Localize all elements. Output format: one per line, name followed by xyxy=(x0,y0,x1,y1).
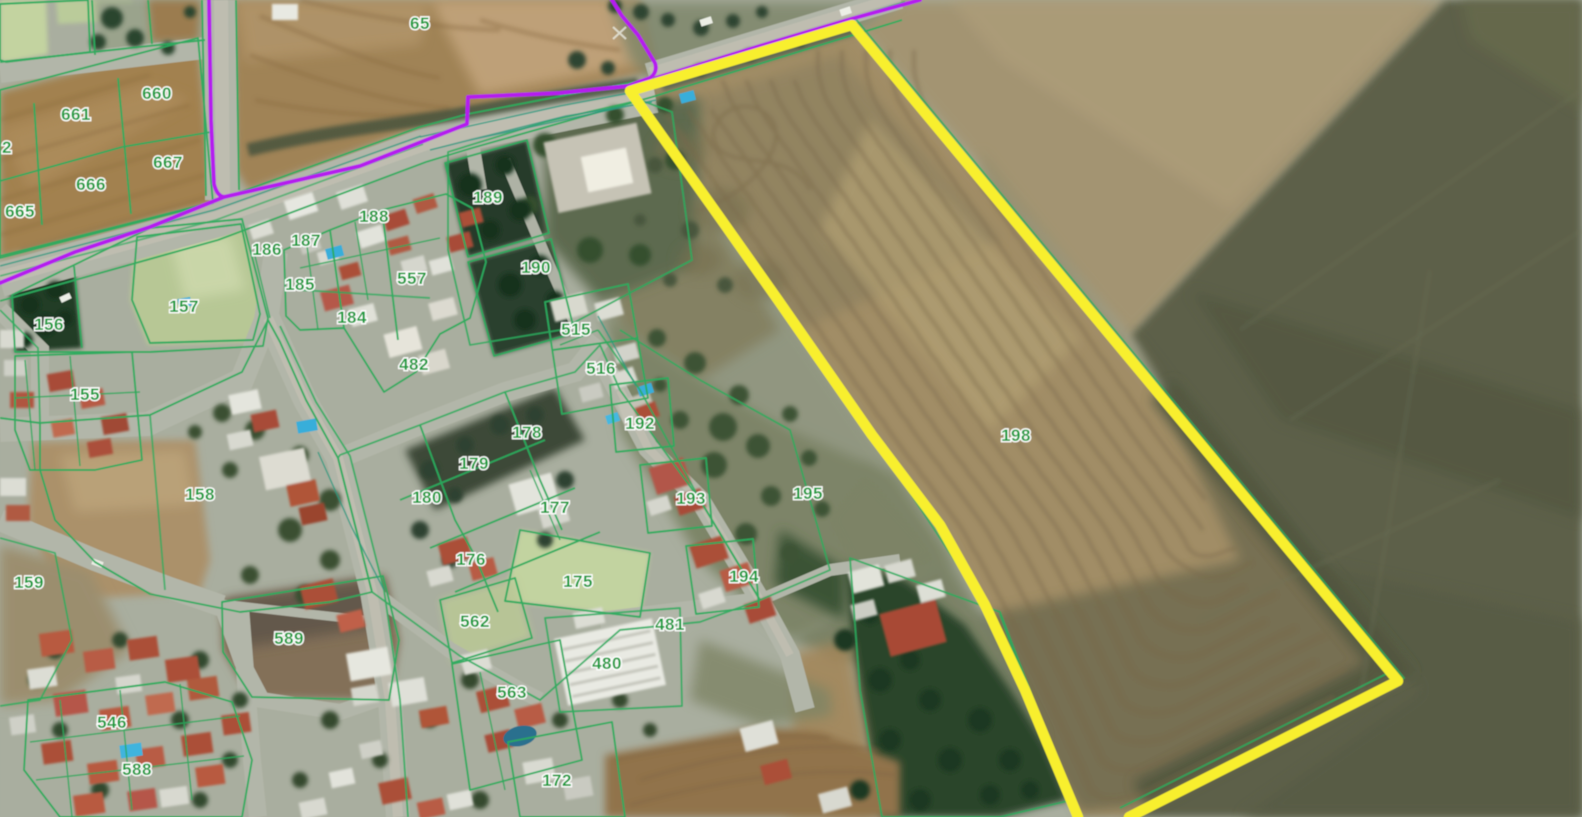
svg-text:665: 665 xyxy=(5,202,35,221)
svg-text:546: 546 xyxy=(97,713,127,732)
svg-text:195: 195 xyxy=(793,484,823,503)
svg-text:177: 177 xyxy=(540,498,570,517)
svg-text:660: 660 xyxy=(142,84,172,103)
svg-text:480: 480 xyxy=(592,654,622,673)
svg-text:178: 178 xyxy=(512,423,542,442)
svg-text:194: 194 xyxy=(729,567,759,586)
svg-text:184: 184 xyxy=(337,308,367,327)
svg-text:180: 180 xyxy=(412,488,442,507)
svg-text:515: 515 xyxy=(561,320,591,339)
svg-text:193: 193 xyxy=(676,489,706,508)
svg-text:557: 557 xyxy=(397,269,427,288)
svg-text:172: 172 xyxy=(542,771,572,790)
svg-text:186: 186 xyxy=(252,240,282,259)
svg-text:187: 187 xyxy=(291,231,321,250)
svg-text:175: 175 xyxy=(563,572,593,591)
svg-text:158: 158 xyxy=(185,485,215,504)
svg-text:667: 667 xyxy=(153,153,183,172)
svg-text:588: 588 xyxy=(122,760,152,779)
svg-text:198: 198 xyxy=(1001,426,1031,445)
svg-text:2: 2 xyxy=(2,138,12,157)
svg-text:192: 192 xyxy=(625,414,655,433)
svg-text:562: 562 xyxy=(460,612,490,631)
svg-text:156: 156 xyxy=(34,315,64,334)
svg-text:185: 185 xyxy=(285,275,315,294)
svg-text:65: 65 xyxy=(410,14,430,33)
svg-text:482: 482 xyxy=(399,355,429,374)
svg-text:190: 190 xyxy=(521,258,551,277)
svg-text:589: 589 xyxy=(274,629,304,648)
svg-text:188: 188 xyxy=(359,207,389,226)
svg-text:563: 563 xyxy=(497,683,527,702)
svg-text:159: 159 xyxy=(14,573,44,592)
svg-text:155: 155 xyxy=(70,385,100,404)
svg-text:189: 189 xyxy=(473,188,503,207)
svg-text:661: 661 xyxy=(61,105,91,124)
svg-text:666: 666 xyxy=(76,175,106,194)
svg-text:157: 157 xyxy=(169,297,199,316)
svg-text:481: 481 xyxy=(655,615,685,634)
svg-text:179: 179 xyxy=(459,454,489,473)
svg-text:176: 176 xyxy=(456,550,486,569)
svg-text:516: 516 xyxy=(586,359,616,378)
